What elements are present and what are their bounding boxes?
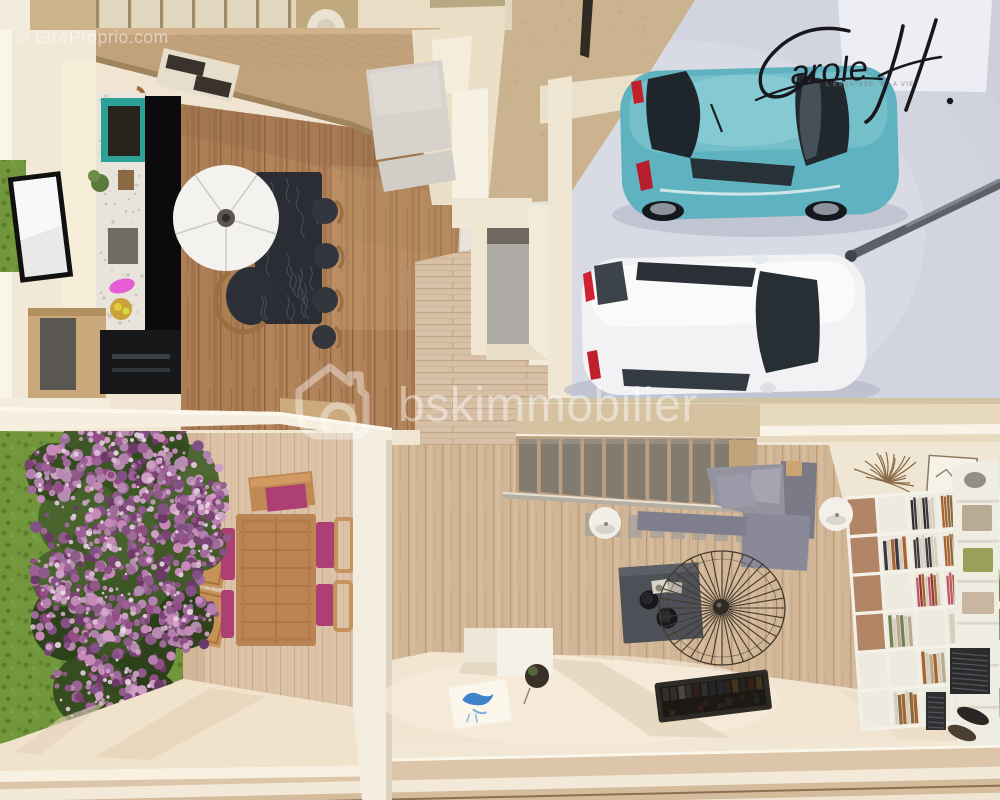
svg-text:bskimmobilier: bskimmobilier (398, 379, 698, 432)
svg-text:© EtreProprio.com: © EtreProprio.com (16, 27, 169, 47)
svg-text:L'ESQUISSE, À LA VIE: L'ESQUISSE, À LA VIE (826, 81, 915, 88)
